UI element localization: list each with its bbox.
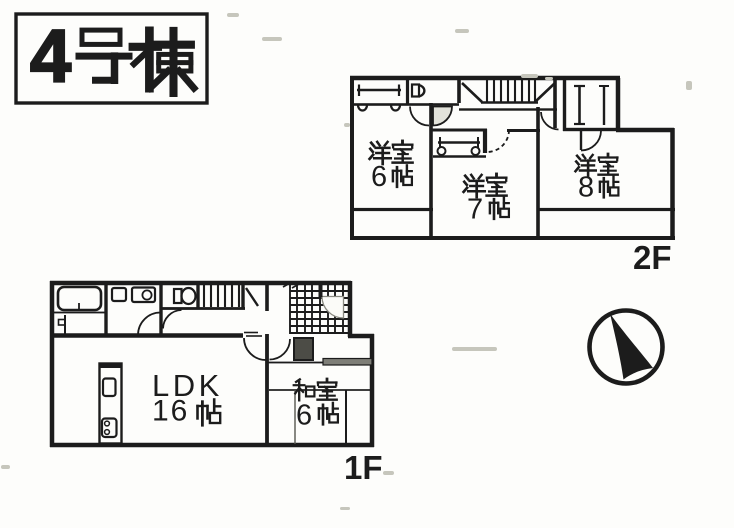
svg-text:2F: 2F bbox=[633, 239, 672, 276]
svg-text:7: 7 bbox=[467, 194, 483, 226]
svg-text:8: 8 bbox=[578, 172, 594, 204]
svg-text:6: 6 bbox=[296, 400, 312, 432]
svg-text:6: 6 bbox=[371, 161, 387, 193]
svg-text:16: 16 bbox=[152, 395, 189, 428]
svg-text:4: 4 bbox=[30, 15, 71, 98]
svg-text:1F: 1F bbox=[344, 449, 383, 486]
